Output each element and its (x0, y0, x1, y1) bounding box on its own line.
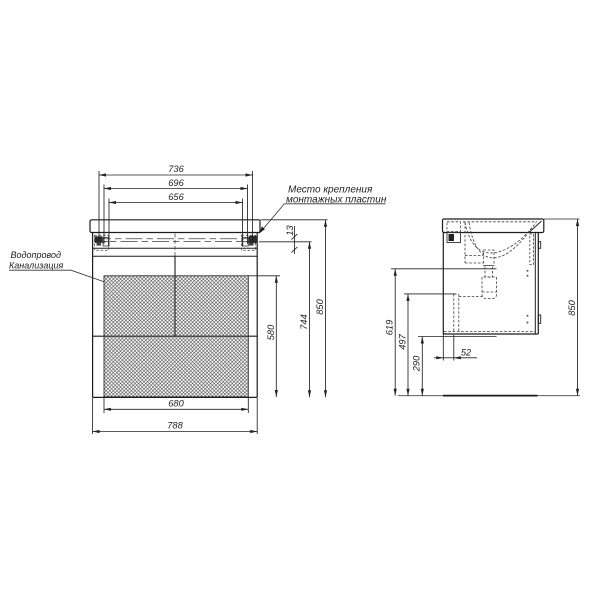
svg-text:52: 52 (461, 347, 472, 357)
svg-text:850: 850 (567, 299, 577, 315)
svg-text:290: 290 (412, 355, 422, 372)
svg-text:Водопровод: Водопровод (11, 250, 61, 260)
svg-text:680: 680 (168, 398, 184, 408)
svg-text:656: 656 (168, 192, 184, 202)
svg-text:13: 13 (285, 225, 295, 236)
svg-text:744: 744 (299, 314, 309, 330)
svg-text:580: 580 (266, 324, 276, 340)
svg-text:619: 619 (385, 320, 395, 336)
svg-text:788: 788 (167, 421, 183, 431)
svg-text:850: 850 (315, 298, 325, 314)
svg-text:736: 736 (168, 164, 184, 174)
svg-text:Канализация: Канализация (9, 260, 63, 270)
svg-text:497: 497 (397, 333, 407, 349)
svg-text:696: 696 (168, 178, 184, 188)
